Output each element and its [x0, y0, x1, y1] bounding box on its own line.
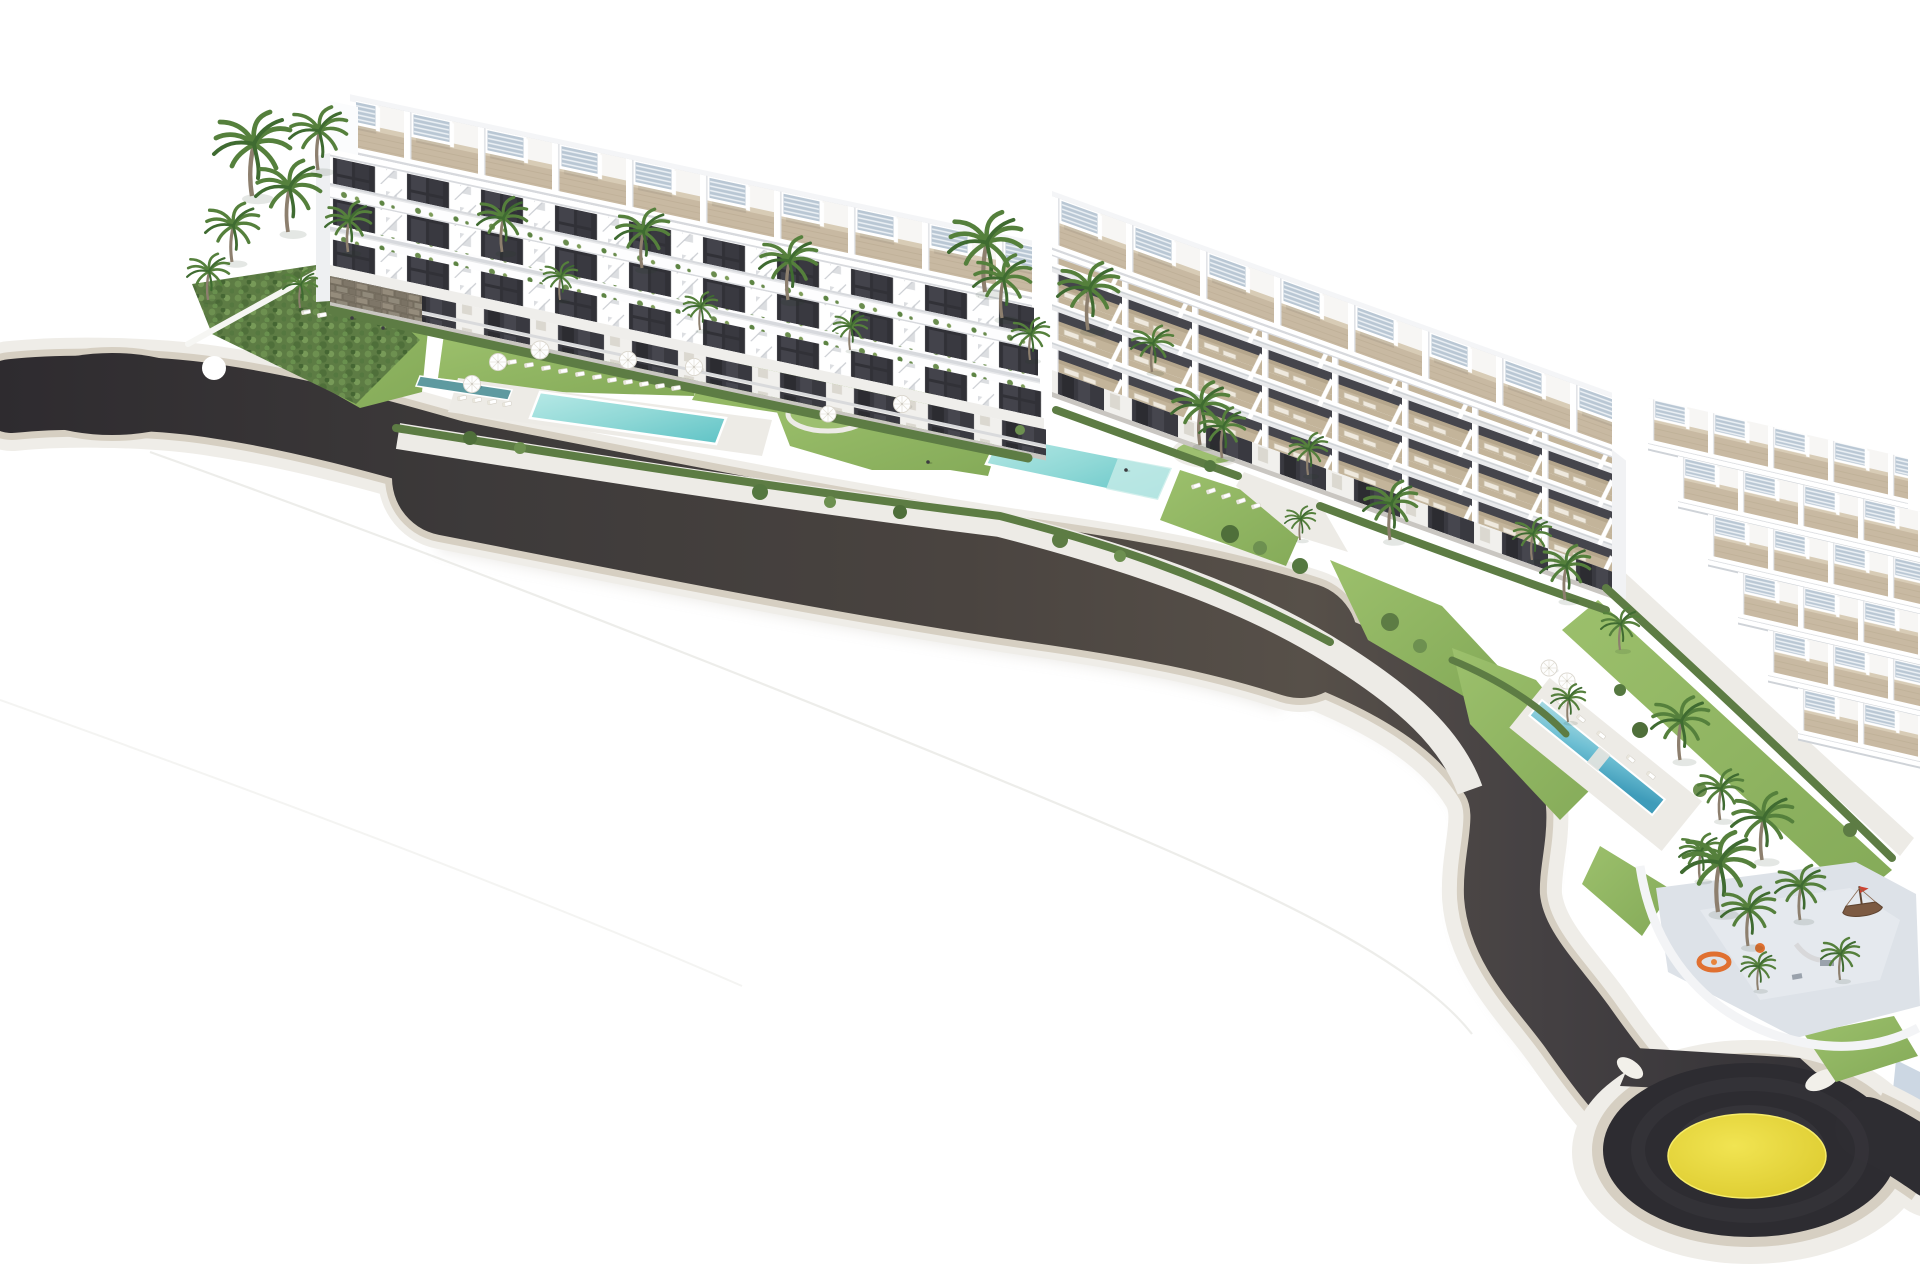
roundabout	[1572, 1040, 1920, 1264]
road-notch	[202, 356, 226, 380]
render-canvas: Aerial 3D architectural rendering of a w…	[0, 0, 1920, 1280]
aerial-render	[0, 0, 1920, 1280]
roundabout-yellow-center	[1668, 1114, 1826, 1198]
